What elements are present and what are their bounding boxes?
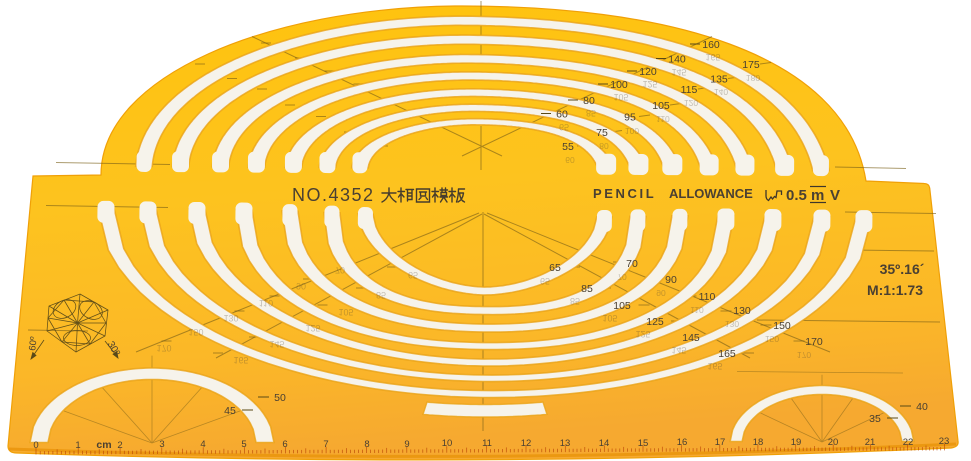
svg-text:NO.4352: NO.4352 — [292, 185, 375, 205]
svg-text:110: 110 — [690, 305, 704, 315]
svg-text:150: 150 — [765, 334, 779, 344]
svg-text:7: 7 — [323, 439, 328, 450]
svg-text:V: V — [830, 187, 840, 204]
svg-text:0.5: 0.5 — [786, 187, 807, 204]
svg-text:35º.16´: 35º.16´ — [880, 261, 925, 277]
svg-text:6: 6 — [282, 439, 287, 450]
svg-text:120: 120 — [684, 98, 698, 108]
svg-text:3: 3 — [159, 439, 164, 450]
svg-text:9: 9 — [404, 439, 409, 450]
svg-text:90: 90 — [296, 281, 306, 291]
svg-text:170: 170 — [797, 350, 811, 360]
svg-text:175: 175 — [742, 59, 760, 71]
svg-text:35: 35 — [869, 413, 881, 425]
svg-text:105: 105 — [652, 100, 670, 112]
svg-text:70: 70 — [617, 272, 627, 282]
svg-text:125: 125 — [635, 329, 650, 339]
svg-text:13: 13 — [560, 438, 571, 449]
svg-text:140: 140 — [668, 54, 686, 66]
svg-text:75: 75 — [596, 127, 608, 139]
svg-text:ALLOWANCE: ALLOWANCE — [669, 186, 753, 201]
svg-text:85: 85 — [581, 283, 593, 295]
svg-text:85: 85 — [586, 108, 596, 118]
svg-text:125: 125 — [305, 323, 320, 333]
svg-text:115: 115 — [681, 84, 698, 96]
svg-text:55: 55 — [562, 141, 574, 153]
svg-text:130: 130 — [733, 305, 751, 317]
svg-text:65: 65 — [559, 122, 569, 132]
svg-text:65: 65 — [549, 262, 561, 274]
svg-text:80: 80 — [583, 95, 595, 107]
svg-text:105: 105 — [338, 307, 353, 317]
svg-text:145: 145 — [269, 339, 284, 349]
svg-text:160: 160 — [702, 39, 720, 51]
svg-text:1: 1 — [75, 440, 80, 451]
svg-text:180: 180 — [746, 73, 760, 83]
svg-text:90: 90 — [656, 288, 666, 298]
svg-text:145: 145 — [671, 67, 686, 77]
svg-text:20: 20 — [828, 437, 839, 448]
svg-text:170: 170 — [156, 343, 171, 353]
svg-text:60: 60 — [565, 155, 575, 165]
svg-text:85: 85 — [570, 296, 580, 306]
svg-text:18: 18 — [753, 437, 764, 448]
svg-text:165: 165 — [718, 348, 736, 360]
svg-text:PENCIL: PENCIL — [593, 186, 656, 201]
svg-text:2: 2 — [117, 440, 122, 451]
svg-text:cm: cm — [96, 439, 111, 451]
svg-text:m: m — [811, 187, 824, 204]
svg-text:15: 15 — [638, 438, 649, 449]
svg-text:120: 120 — [639, 66, 657, 78]
svg-text:M:1:1.73: M:1:1.73 — [867, 282, 923, 298]
svg-text:80: 80 — [599, 141, 609, 151]
svg-text:150: 150 — [188, 327, 203, 337]
svg-text:11: 11 — [482, 438, 492, 449]
svg-text:8: 8 — [364, 439, 369, 450]
svg-text:70: 70 — [335, 265, 345, 275]
svg-text:12: 12 — [521, 438, 532, 449]
svg-text:95: 95 — [624, 112, 636, 124]
svg-text:14: 14 — [599, 438, 610, 449]
svg-text:165: 165 — [705, 52, 720, 62]
svg-text:145: 145 — [671, 345, 686, 355]
svg-text:19: 19 — [791, 437, 802, 448]
svg-text:16: 16 — [677, 437, 688, 448]
svg-text:17: 17 — [715, 437, 726, 448]
svg-text:150: 150 — [773, 320, 791, 332]
svg-text:125: 125 — [642, 79, 657, 89]
svg-text:70: 70 — [626, 258, 638, 270]
svg-text:50: 50 — [274, 392, 286, 404]
svg-text:130: 130 — [223, 313, 238, 323]
svg-text:90: 90 — [665, 274, 677, 286]
svg-text:170: 170 — [805, 336, 823, 348]
svg-text:135: 135 — [710, 74, 728, 86]
svg-text:110: 110 — [699, 291, 716, 303]
svg-text:60º: 60º — [27, 336, 40, 352]
svg-text:165: 165 — [707, 361, 722, 371]
svg-text:105: 105 — [613, 300, 631, 312]
svg-text:125: 125 — [646, 316, 664, 328]
svg-text:165: 165 — [233, 355, 248, 365]
svg-text:110: 110 — [656, 114, 670, 124]
svg-text:45: 45 — [224, 405, 236, 417]
svg-text:105: 105 — [613, 92, 628, 102]
svg-text:0: 0 — [33, 440, 38, 451]
svg-text:65: 65 — [540, 276, 550, 286]
svg-text:23: 23 — [939, 436, 950, 447]
svg-text:145: 145 — [682, 332, 700, 344]
svg-text:22: 22 — [903, 437, 914, 448]
svg-text:130: 130 — [725, 319, 739, 329]
svg-text:110: 110 — [259, 298, 273, 308]
svg-text:60: 60 — [556, 109, 568, 121]
svg-text:4: 4 — [200, 439, 205, 450]
svg-text:40: 40 — [916, 401, 928, 413]
svg-text:105: 105 — [602, 313, 617, 323]
svg-text:65: 65 — [408, 270, 418, 280]
svg-text:100: 100 — [610, 79, 628, 91]
svg-text:10: 10 — [442, 438, 453, 449]
svg-text:21: 21 — [865, 437, 876, 448]
svg-text:140: 140 — [714, 87, 728, 97]
svg-text:100: 100 — [625, 126, 639, 136]
svg-text:5: 5 — [241, 439, 246, 450]
svg-text:85: 85 — [376, 290, 386, 300]
